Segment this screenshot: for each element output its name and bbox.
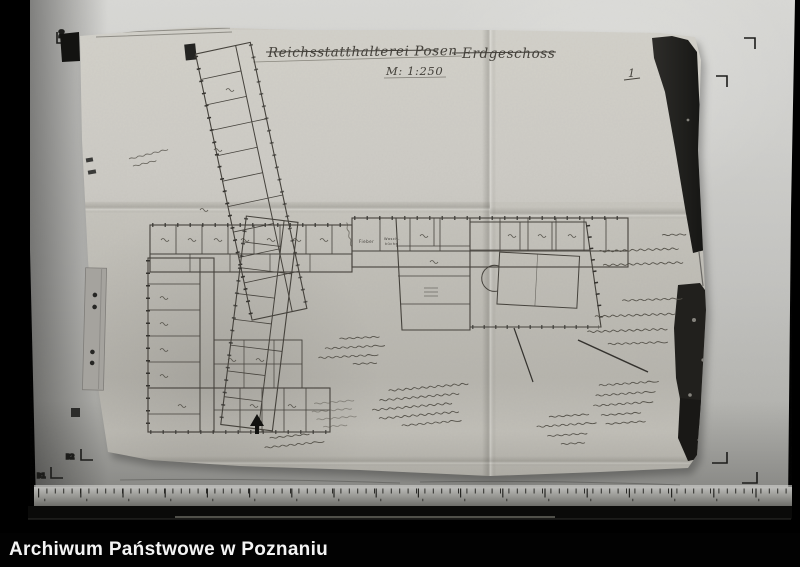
page-number: 1: [628, 67, 636, 80]
vertical-fold-crease: [482, 30, 496, 476]
frame-mark-label-d1: D1: [37, 472, 45, 480]
frame-mark-label-b2: B2: [66, 453, 74, 461]
room-label-fieber: Fieber: [359, 239, 374, 244]
hinge-strip: [82, 268, 106, 391]
archive-caption-text: Archiwum Państwowe w Poznaniu: [0, 539, 328, 561]
room-label-wasch-2: küche: [385, 242, 399, 246]
microfilm-photo: D0 B1 B2 D1: [0, 0, 800, 567]
photographic-ruler: [28, 486, 792, 519]
dark-edge-mark: [184, 43, 197, 60]
floor-label: Erdgeschoss: [461, 46, 555, 62]
dark-clip-blob: [60, 32, 80, 62]
archive-caption-bar: Archiwum Państwowe w Poznaniu: [0, 533, 800, 567]
horizontal-fold-right: [490, 207, 702, 219]
scale-note: M: 1:250: [385, 64, 443, 78]
room-label-wasch-1: Wasch-: [384, 237, 400, 241]
scanned-archive-frame: D0 B1 B2 D1: [0, 0, 800, 567]
